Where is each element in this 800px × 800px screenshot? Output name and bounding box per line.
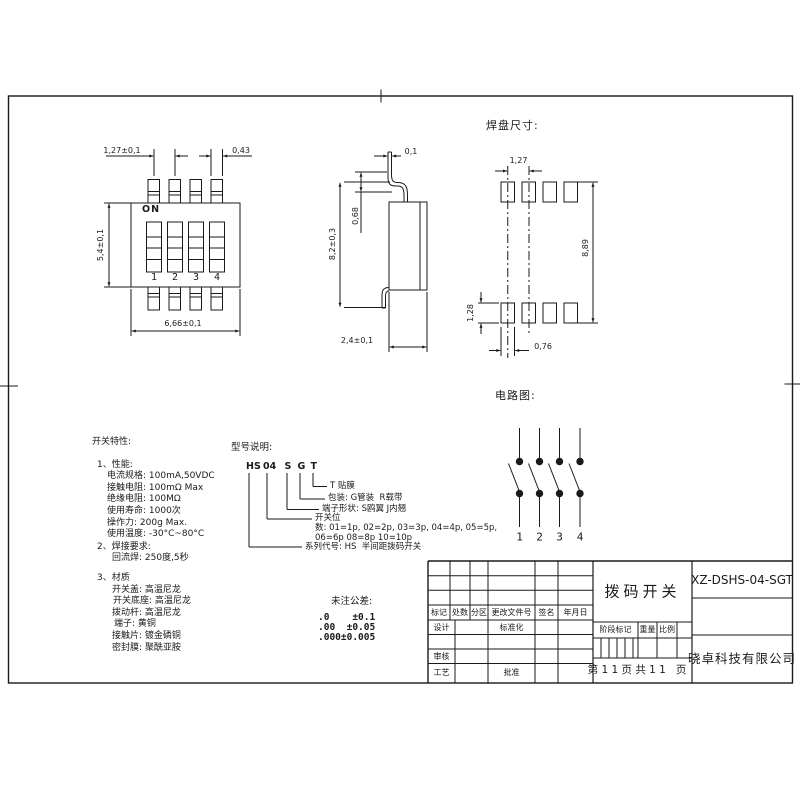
dim-pin-width: 0,43: [232, 147, 250, 155]
spec-line: 端子: 黄铜: [114, 619, 215, 631]
solder-heading: 2、焊接要求:: [97, 542, 215, 554]
dim-body-height: 5,4±0,1: [97, 229, 105, 261]
spec-line: 使用寿命: 1000次: [107, 506, 215, 518]
label-craft: 工艺: [434, 669, 450, 677]
dim-pin-thickness: 0,1: [405, 148, 418, 156]
perf-heading: 1、性能:: [97, 460, 215, 472]
dim-pad-row-span: 8,89: [582, 239, 590, 257]
front-view-drawing: [104, 149, 252, 336]
side-view-drawing: [340, 152, 427, 352]
legend-series: 系列代号: HS 半间距拨码开关: [305, 543, 421, 552]
switch-number-4: 4: [214, 273, 220, 283]
dim-pad-width: 0,76: [534, 343, 552, 351]
pad-section-title: 焊盘尺寸:: [486, 120, 539, 131]
pole-number-3: 3: [556, 532, 563, 543]
dim-pitch: 1,27±0,1: [103, 147, 140, 155]
material-heading: 3、材质: [97, 573, 215, 585]
spec-line: 开关底座: 高温尼龙: [113, 596, 215, 608]
pole-number-4: 4: [577, 532, 584, 543]
spec-line: 拨动杆: 高温尼龙: [112, 608, 215, 620]
dim-total-height: 8,2±0,3: [329, 228, 337, 260]
legend-positions-1: 开关位: [315, 514, 341, 523]
code-terminal: S: [285, 462, 292, 472]
switch-number-2: 2: [172, 273, 178, 283]
model-legend-title: 型号说明:: [231, 443, 272, 453]
code-positions: 04: [263, 462, 276, 472]
dim-body-width: 6,66±0,1: [164, 320, 201, 328]
pad-layout-drawing: [478, 166, 598, 358]
label-weight: 重量: [640, 626, 656, 634]
rev-header-mark: 标记: [431, 609, 447, 617]
rev-header-sign: 签名: [539, 609, 555, 617]
circuit-drawing: [509, 428, 584, 527]
company-name: 晓卓科技有限公司: [688, 652, 796, 665]
spec-line: 使用温度: -30°C~80°C: [107, 529, 215, 541]
label-approve: 批准: [504, 669, 520, 677]
tolerance-title: 未注公差:: [331, 597, 372, 607]
spec-line: 接触片: 镀金磷铜: [112, 631, 215, 643]
dim-pad-height: 1,28: [467, 304, 475, 322]
circuit-section-title: 电路图:: [495, 390, 536, 401]
rev-header-zone: 分区: [471, 609, 487, 617]
code-film: T: [311, 462, 317, 472]
spec-line: 接触电阻: 100mΩ Max: [107, 483, 215, 495]
on-marking: ON: [142, 205, 160, 215]
switch-number-1: 1: [151, 273, 157, 283]
pole-number-2: 2: [536, 532, 543, 543]
legend-film: T 贴膜: [330, 482, 355, 491]
drawing-lines: [0, 0, 800, 800]
code-packing: G: [298, 462, 306, 472]
legend-terminal: 端子形状: S鸥翼 J内翘: [322, 505, 406, 514]
label-scale: 比例: [659, 626, 675, 634]
tolerance-row: .000±0.005: [318, 633, 375, 643]
drawing-sheet: ON 1 2 3 4 1,27±0,1 0,43 5,4±0,1 6,66±0,…: [0, 0, 800, 800]
page-info: 第 1 1 页 共 1 1 页: [588, 664, 687, 675]
label-stage-mark: 阶段标记: [600, 626, 632, 634]
spec-line: 回流焊: 250度,5秒: [112, 553, 215, 565]
rev-header-docno: 更改文件号: [492, 609, 532, 617]
label-standardization: 标准化: [500, 624, 524, 632]
part-number: XZ-DSHS-04-SGT: [691, 574, 793, 586]
spec-line: 操作力: 200g Max.: [107, 518, 215, 530]
pole-number-1: 1: [516, 532, 523, 543]
characteristics-title: 开关特性:: [92, 437, 215, 449]
dim-standoff: 0,68: [352, 207, 360, 225]
dim-body-depth: 2,4±0,1: [341, 337, 373, 345]
code-series: HS: [246, 462, 261, 472]
rev-header-count: 处数: [452, 609, 468, 617]
legend-positions-3: 06=6p 08=8p 10=10p: [315, 534, 412, 543]
legend-positions-2: 数: 01=1p, 02=2p, 03=3p, 04=4p, 05=5p,: [315, 524, 497, 533]
spec-line: 密封膜: 聚酰亚胺: [112, 643, 215, 655]
spec-line: 绝缘电阻: 100MΩ: [107, 494, 215, 506]
drawing-title: 拨码开关: [604, 584, 680, 599]
characteristics-block: 开关特性: 1、性能: 电流规格: 100mA,50VDC 接触电阻: 100m…: [92, 437, 215, 654]
spec-line: 开关盖: 高温尼龙: [112, 585, 215, 597]
label-design: 设计: [434, 624, 450, 632]
dim-pad-pitch: 1,27: [510, 157, 528, 165]
legend-packing: 包装: G管装 R载带: [328, 494, 402, 503]
spec-line: 电流规格: 100mA,50VDC: [107, 471, 215, 483]
switch-number-3: 3: [193, 273, 199, 283]
rev-header-date: 年月日: [564, 609, 588, 617]
label-check: 审核: [434, 653, 450, 661]
